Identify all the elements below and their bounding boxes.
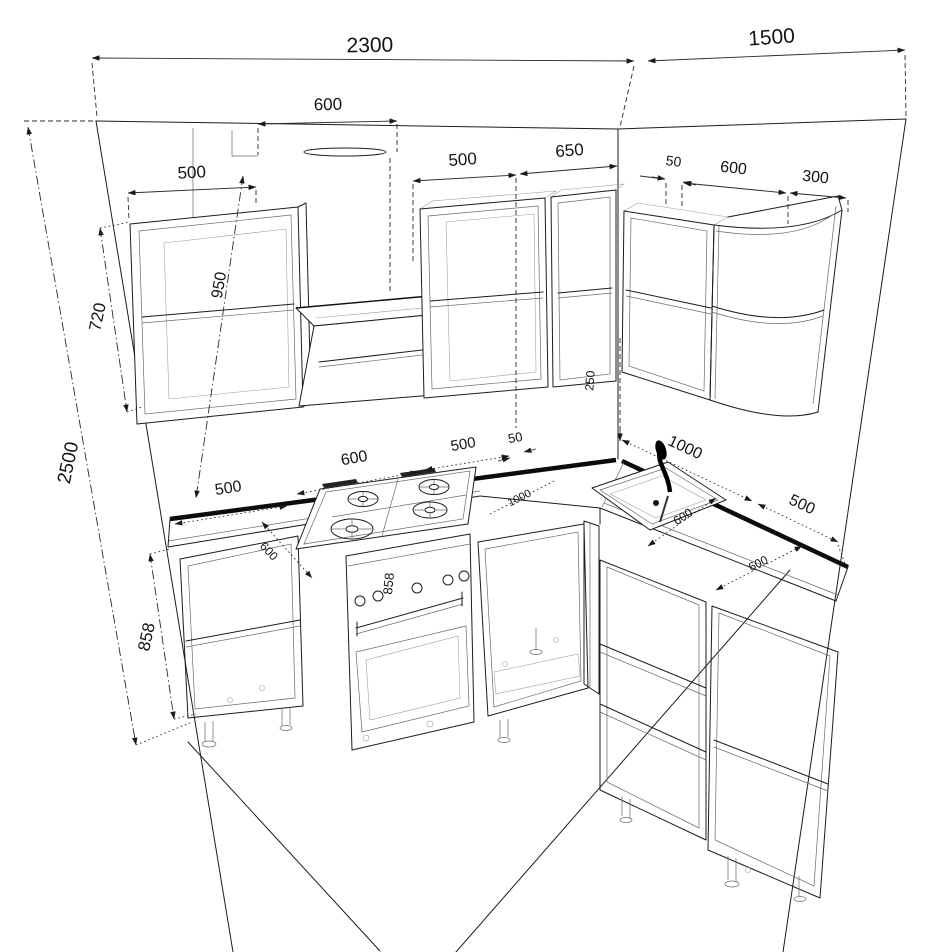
- oven: [346, 534, 474, 750]
- dim-hood-width: 600: [314, 95, 343, 114]
- dim-base-height: 858: [134, 621, 158, 653]
- dim-upper-filler: 50: [665, 152, 683, 170]
- dim-right-run: 1000: [665, 433, 705, 463]
- oven-knob: [412, 583, 422, 593]
- dim-room-height: 2500: [54, 440, 83, 486]
- base-cabinet-right: [708, 606, 838, 902]
- dim-upper-end-width: 300: [801, 168, 829, 188]
- cooktop: [296, 467, 476, 549]
- sink-drain: [653, 500, 659, 506]
- dim-depth-right: 600: [746, 553, 770, 575]
- dim-corner-gap: 250: [582, 370, 597, 391]
- dim-upper-right-width: 600: [719, 159, 747, 179]
- wall-cabinet-650: [551, 184, 624, 387]
- dim-upper-650-width: 650: [555, 140, 585, 161]
- dim-right-wall: 1500: [747, 24, 795, 50]
- kitchen-drawing-canvas: 2300 1500 600 500 500 650 50 600 300: [0, 0, 934, 952]
- base-cabinet-middle: [478, 524, 588, 743]
- oven-knob: [443, 575, 453, 585]
- oven-knob: [355, 596, 365, 606]
- dim-back-wall: 2300: [346, 34, 393, 58]
- dim-oven-height: 858: [380, 572, 397, 595]
- dim-base-filler: 50: [507, 429, 524, 446]
- wall-cabinet-left: [130, 203, 311, 424]
- dim-base-mid-width: 500: [449, 434, 477, 455]
- ceiling-vent: [304, 148, 390, 294]
- dim-upper-left-width: 500: [177, 162, 206, 182]
- wall-cabinet-right-600: [622, 203, 728, 400]
- sink: [592, 462, 726, 530]
- base-cabinet-left: [180, 536, 303, 747]
- wall-cabinet-middle: [420, 191, 556, 398]
- wall-cabinet-corner-300: [710, 196, 842, 416]
- dim-upper-height: 720: [85, 301, 109, 333]
- sink-base-cabinet: [600, 560, 706, 840]
- dim-base-left-width: 500: [214, 478, 243, 499]
- dim-corner-run: 1000: [506, 487, 533, 509]
- oven-knob: [459, 571, 469, 581]
- dim-stove-width: 600: [340, 448, 369, 469]
- dim-right-base-width: 500: [786, 492, 817, 519]
- dim-upper-mid-width: 500: [448, 149, 478, 170]
- countertop: [168, 462, 848, 601]
